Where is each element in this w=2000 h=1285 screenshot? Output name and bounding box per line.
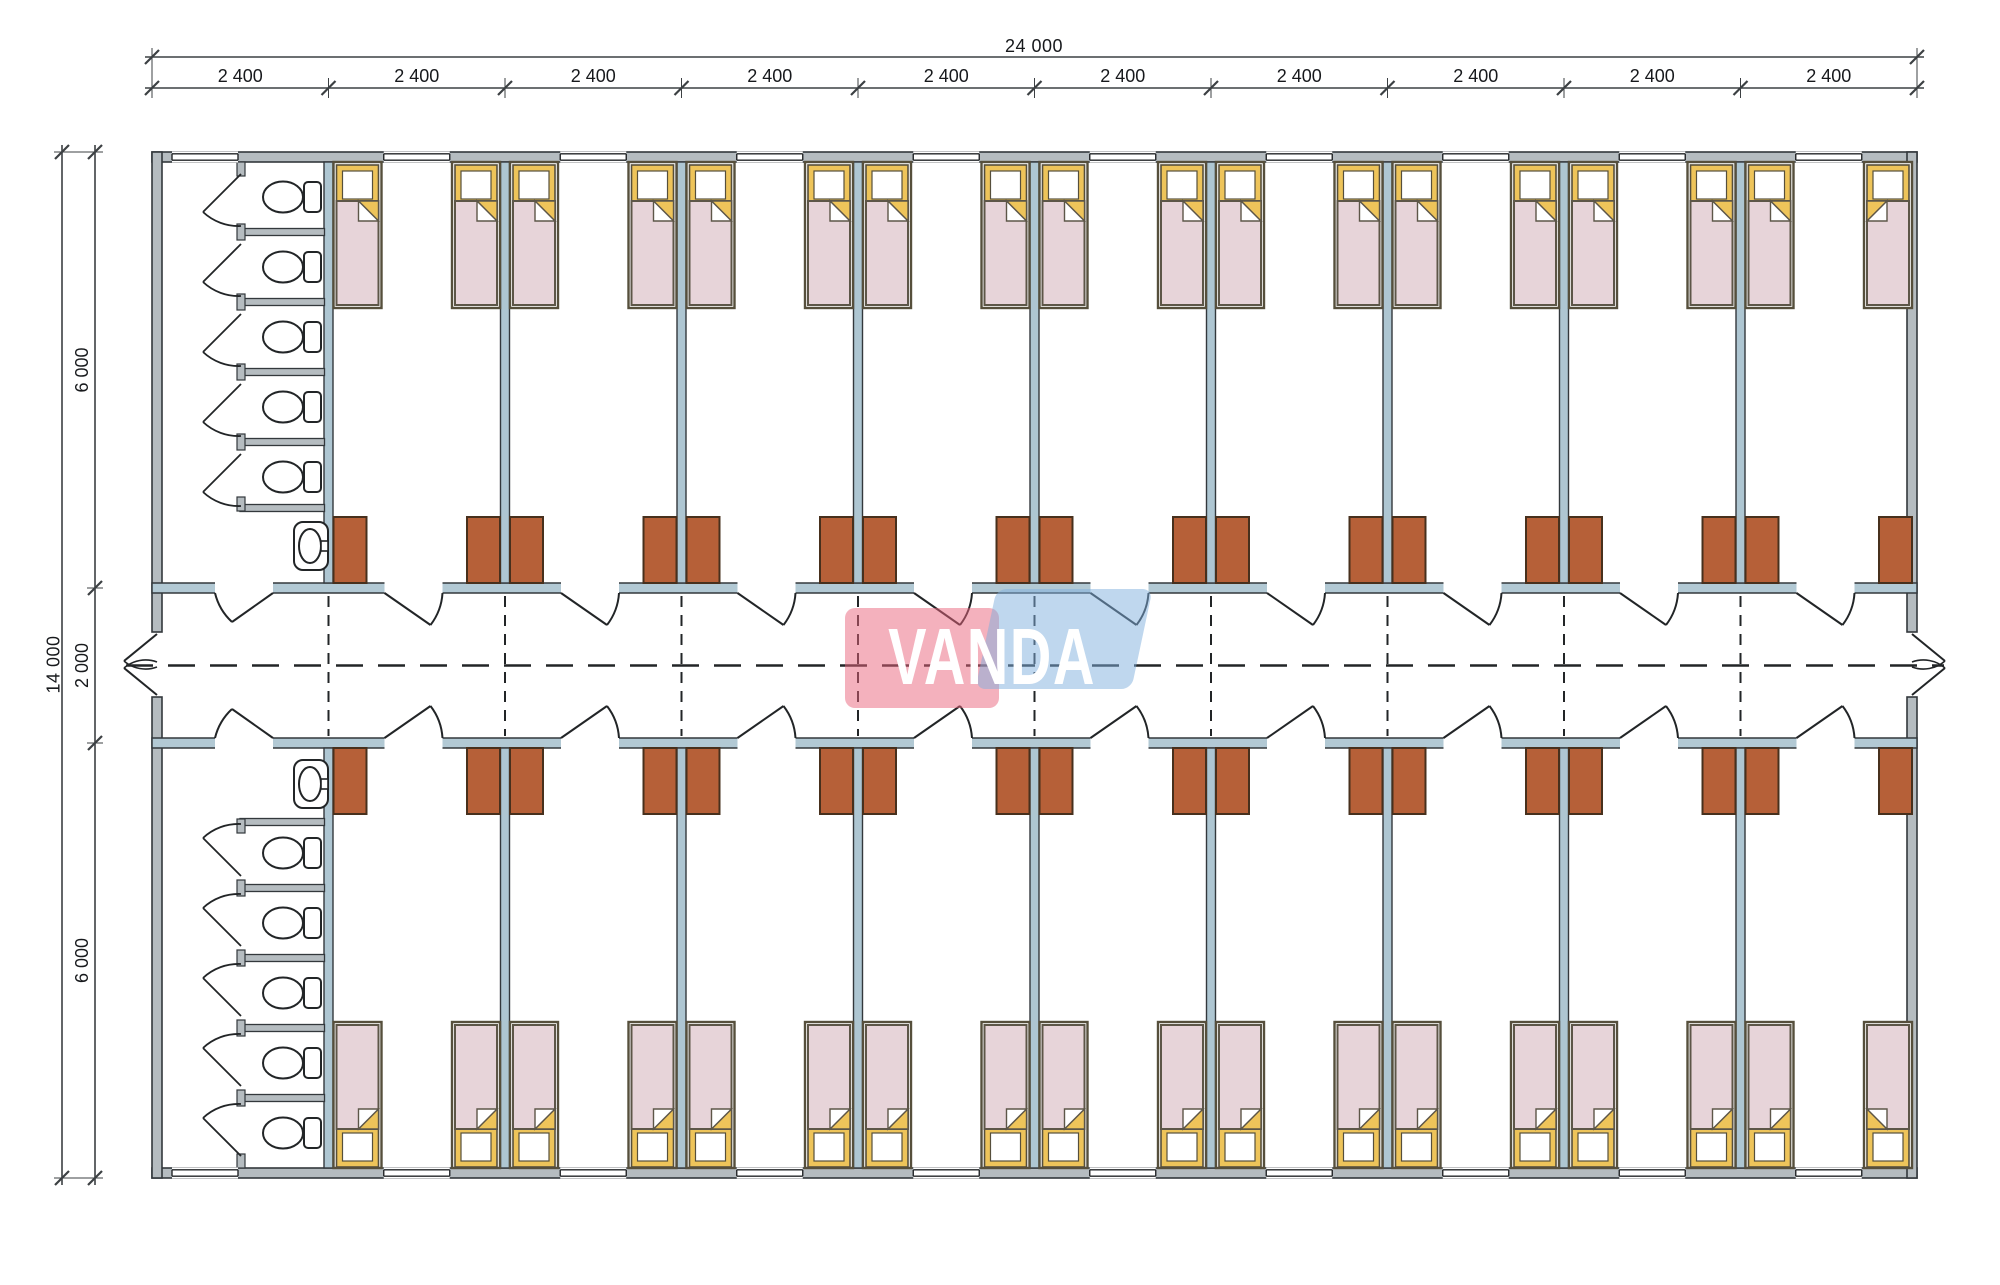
- door-opening: [215, 582, 273, 595]
- stall-door-swing: [203, 908, 241, 946]
- dimension-segment-label: 2 400: [218, 66, 263, 86]
- toilet-icon: [263, 392, 303, 423]
- stall-divider-wall: [240, 369, 325, 376]
- dimension-segment-label: 2 400: [747, 66, 792, 86]
- bed-pillow: [1873, 171, 1903, 199]
- toilet-icon: [304, 462, 321, 492]
- toilet-icon: [304, 1118, 321, 1148]
- stall-door-swing: [203, 1034, 241, 1048]
- room-door-swing: [1666, 706, 1678, 738]
- wardrobe: [1526, 748, 1559, 814]
- bed-pillow: [1578, 171, 1608, 199]
- dimension-segment-label: 2 000: [72, 643, 92, 688]
- wardrobe: [1569, 748, 1602, 814]
- bathroom-door-swing: [215, 709, 232, 738]
- stall-divider-wall: [240, 505, 325, 512]
- room-door-swing: [1490, 706, 1502, 738]
- toilet-icon: [304, 908, 321, 938]
- stall-door-swing: [203, 212, 241, 226]
- bed-pillow: [696, 171, 726, 199]
- wardrobe: [1216, 517, 1249, 583]
- bed-pillow: [1402, 171, 1432, 199]
- partition-wall: [1383, 162, 1392, 583]
- door-opening: [385, 737, 443, 750]
- bed-pillow: [814, 1133, 844, 1161]
- wardrobe: [1216, 748, 1249, 814]
- wardrobe: [644, 748, 677, 814]
- wardrobe: [1350, 517, 1383, 583]
- end-door-leaf: [1912, 634, 1945, 661]
- stall-door-swing: [203, 1048, 241, 1086]
- wardrobe: [1569, 517, 1602, 583]
- wardrobe: [1703, 517, 1736, 583]
- room-door-swing: [914, 706, 960, 738]
- room-door-swing: [1091, 593, 1137, 625]
- stall-door-swing: [203, 384, 241, 422]
- toilet-icon: [304, 322, 321, 352]
- toilet-icon: [263, 908, 303, 939]
- bed-pillow: [461, 171, 491, 199]
- bed-pillow: [1578, 1133, 1608, 1161]
- bed-pillow: [1402, 1133, 1432, 1161]
- bed-pillow: [991, 171, 1021, 199]
- toilet-icon: [263, 1048, 303, 1079]
- room-door-swing: [1267, 706, 1313, 738]
- bed-pillow: [1520, 1133, 1550, 1161]
- stall-front-stub: [237, 497, 245, 511]
- bed-pillow: [872, 1133, 902, 1161]
- bed-pillow: [461, 1133, 491, 1161]
- room-door-swing: [960, 593, 972, 625]
- wardrobe: [820, 517, 853, 583]
- toilet-icon: [263, 978, 303, 1009]
- door-opening: [385, 582, 443, 595]
- bed-pillow: [519, 171, 549, 199]
- wardrobe: [1703, 748, 1736, 814]
- stall-door-swing: [203, 838, 241, 876]
- wardrobe: [644, 517, 677, 583]
- bed-pillow: [1344, 1133, 1374, 1161]
- door-opening: [914, 737, 972, 750]
- stall-door-swing: [203, 964, 241, 978]
- toilet-icon: [304, 392, 321, 422]
- end-door-swing: [124, 660, 157, 668]
- room-door-swing: [385, 593, 431, 625]
- partition-wall: [1736, 748, 1745, 1168]
- toilet-icon: [263, 1118, 303, 1149]
- partition-wall: [1207, 748, 1216, 1168]
- wardrobe: [687, 748, 720, 814]
- room-door-swing: [1666, 593, 1678, 625]
- bed-pillow: [696, 1133, 726, 1161]
- end-door-leaf: [124, 668, 157, 695]
- bed-pillow: [519, 1133, 549, 1161]
- partition-wall: [854, 748, 863, 1168]
- stall-door-swing: [203, 894, 241, 908]
- door-opening: [738, 582, 796, 595]
- bed-pillow: [872, 171, 902, 199]
- door-opening: [215, 737, 273, 750]
- exterior-wall-left: [152, 152, 162, 632]
- wardrobe: [1746, 517, 1779, 583]
- room-door-swing: [607, 706, 619, 738]
- bed-pillow: [1697, 171, 1727, 199]
- door-opening: [561, 737, 619, 750]
- floor-plan-canvas: 2 4002 4002 4002 4002 4002 4002 4002 400…: [0, 0, 2000, 1285]
- room-door-swing: [784, 593, 796, 625]
- stall-door-swing: [203, 244, 241, 282]
- door-opening: [1797, 737, 1855, 750]
- bed-pillow: [1167, 171, 1197, 199]
- bed-pillow: [1167, 1133, 1197, 1161]
- room-door-swing: [1091, 706, 1137, 738]
- stall-door-swing: [203, 1104, 241, 1118]
- toilet-icon: [263, 182, 303, 213]
- room-door-swing: [1490, 593, 1502, 625]
- dimension-segment-label: 2 400: [1100, 66, 1145, 86]
- room-door-swing: [738, 593, 784, 625]
- door-opening: [1620, 582, 1678, 595]
- room-door-swing: [1444, 593, 1490, 625]
- room-door-swing: [784, 706, 796, 738]
- wardrobe: [997, 517, 1030, 583]
- room-door-swing: [1620, 593, 1666, 625]
- room-door-swing: [385, 706, 431, 738]
- sink-icon: [299, 529, 321, 563]
- end-door-leaf: [124, 634, 157, 661]
- room-door-swing: [431, 706, 443, 738]
- room-door-swing: [960, 706, 972, 738]
- partition-wall: [1560, 748, 1569, 1168]
- wardrobe: [1040, 748, 1073, 814]
- partition-wall: [501, 162, 510, 583]
- wardrobe: [1879, 517, 1912, 583]
- stall-divider-wall: [240, 1095, 325, 1102]
- bed-pillow: [1755, 1133, 1785, 1161]
- room-door-swing: [561, 706, 607, 738]
- room-door-swing: [561, 593, 607, 625]
- stall-door-swing: [203, 492, 241, 506]
- door-opening: [1091, 582, 1149, 595]
- room-door-swing: [1313, 706, 1325, 738]
- bed-pillow: [638, 1133, 668, 1161]
- bed-pillow: [1697, 1133, 1727, 1161]
- toilet-icon: [304, 182, 321, 212]
- room-door-swing: [1444, 706, 1490, 738]
- toilet-icon: [263, 838, 303, 869]
- partition-wall: [324, 162, 333, 583]
- bed-pillow: [343, 1133, 373, 1161]
- door-opening: [1267, 737, 1325, 750]
- wardrobe: [1746, 748, 1779, 814]
- room-door-swing: [1797, 593, 1843, 625]
- toilet-icon: [304, 252, 321, 282]
- dimension-segment-label: 2 400: [394, 66, 439, 86]
- dimension-segment-label: 2 400: [924, 66, 969, 86]
- wardrobe: [863, 517, 896, 583]
- door-opening: [1444, 582, 1502, 595]
- wardrobe: [1526, 517, 1559, 583]
- room-door-swing: [1843, 706, 1855, 738]
- end-door-leaf: [1912, 668, 1945, 695]
- room-door-swing: [1137, 706, 1149, 738]
- stall-divider-wall: [240, 819, 325, 826]
- door-opening: [1620, 737, 1678, 750]
- wardrobe: [334, 517, 367, 583]
- wardrobe: [1393, 748, 1426, 814]
- room-door-swing: [1797, 706, 1843, 738]
- door-opening: [561, 582, 619, 595]
- toilet-icon: [263, 462, 303, 493]
- partition-wall: [1207, 162, 1216, 583]
- wardrobe: [820, 748, 853, 814]
- room-door-swing: [1313, 593, 1325, 625]
- stall-divider-wall: [240, 229, 325, 236]
- bathroom-door-swing: [232, 709, 273, 738]
- bed-pillow: [343, 171, 373, 199]
- stall-door-swing: [203, 824, 241, 838]
- wardrobe: [510, 517, 543, 583]
- room-door-swing: [431, 593, 443, 625]
- wardrobe: [467, 748, 500, 814]
- partition-wall: [677, 162, 686, 583]
- toilet-icon: [304, 1048, 321, 1078]
- dimension-total-depth: 14 000: [44, 565, 65, 765]
- bed-pillow: [814, 171, 844, 199]
- wardrobe: [1393, 517, 1426, 583]
- door-opening: [1444, 737, 1502, 750]
- stall-door-swing: [203, 352, 241, 366]
- dimension-segment-label: 2 400: [1806, 66, 1851, 86]
- room-door-swing: [1620, 706, 1666, 738]
- stall-door-swing: [203, 454, 241, 492]
- room-door-swing: [914, 593, 960, 625]
- bed-pillow: [1520, 171, 1550, 199]
- end-door-swing: [1912, 660, 1945, 668]
- toilet-icon: [263, 322, 303, 353]
- stall-door-swing: [203, 978, 241, 1016]
- wardrobe: [1040, 517, 1073, 583]
- partition-wall: [1560, 162, 1569, 583]
- stall-front-stub: [237, 162, 245, 176]
- partition-wall: [1030, 748, 1039, 1168]
- dimension-segment-label: 6 000: [72, 347, 92, 392]
- stall-divider-wall: [240, 955, 325, 962]
- bed-pillow: [1049, 171, 1079, 199]
- stall-door-swing: [203, 422, 241, 436]
- dimension-segment-label: 2 400: [571, 66, 616, 86]
- partition-wall: [324, 748, 333, 1168]
- bed-pillow: [1049, 1133, 1079, 1161]
- stall-door-swing: [203, 1118, 241, 1156]
- wardrobe: [1879, 748, 1912, 814]
- bed-pillow: [991, 1133, 1021, 1161]
- floor-plan-drawing: 2 4002 4002 4002 4002 4002 4002 4002 400…: [0, 0, 2000, 1285]
- dimension-segment-label: 2 400: [1630, 66, 1675, 86]
- door-opening: [1091, 737, 1149, 750]
- door-opening: [1797, 582, 1855, 595]
- bathroom-door-swing: [232, 593, 273, 622]
- sink-tap-icon: [321, 779, 328, 789]
- toilet-icon: [304, 978, 321, 1008]
- bathroom-door-swing: [215, 593, 232, 622]
- door-opening: [738, 737, 796, 750]
- sink-tap-icon: [321, 541, 328, 551]
- wardrobe: [997, 748, 1030, 814]
- room-door-swing: [738, 706, 784, 738]
- wardrobe: [863, 748, 896, 814]
- stall-divider-wall: [240, 1025, 325, 1032]
- wardrobe: [1173, 517, 1206, 583]
- toilet-icon: [304, 838, 321, 868]
- dimension-total-width: 24 000: [934, 36, 1134, 57]
- dimension-segment-label: 2 400: [1453, 66, 1498, 86]
- partition-wall: [854, 162, 863, 583]
- room-door-swing: [1267, 593, 1313, 625]
- wardrobe: [1350, 748, 1383, 814]
- room-door-swing: [607, 593, 619, 625]
- bed-pillow: [1755, 171, 1785, 199]
- bed-pillow: [638, 171, 668, 199]
- wardrobe: [334, 748, 367, 814]
- sink-icon: [299, 767, 321, 801]
- wardrobe: [687, 517, 720, 583]
- room-door-swing: [1137, 593, 1149, 625]
- partition-wall: [1736, 162, 1745, 583]
- bed-pillow: [1344, 171, 1374, 199]
- dimension-segment-label: 2 400: [1277, 66, 1322, 86]
- partition-wall: [1030, 162, 1039, 583]
- stall-divider-wall: [240, 299, 325, 306]
- partition-wall: [677, 748, 686, 1168]
- toilet-icon: [263, 252, 303, 283]
- bed-pillow: [1225, 171, 1255, 199]
- stall-door-swing: [203, 174, 241, 212]
- exterior-wall-left: [152, 697, 162, 1178]
- bed-pillow: [1873, 1133, 1903, 1161]
- partition-wall: [1383, 748, 1392, 1168]
- partition-wall: [501, 748, 510, 1168]
- wardrobe: [1173, 748, 1206, 814]
- door-opening: [914, 582, 972, 595]
- stall-divider-wall: [240, 439, 325, 446]
- wardrobe: [510, 748, 543, 814]
- stall-front-stub: [237, 1154, 245, 1168]
- stall-divider-wall: [240, 885, 325, 892]
- stall-front-stub: [237, 819, 245, 833]
- stall-door-swing: [203, 282, 241, 296]
- door-opening: [1267, 582, 1325, 595]
- wardrobe: [467, 517, 500, 583]
- dimension-segment-label: 6 000: [72, 938, 92, 983]
- room-door-swing: [1843, 593, 1855, 625]
- stall-door-swing: [203, 314, 241, 352]
- bed-pillow: [1225, 1133, 1255, 1161]
